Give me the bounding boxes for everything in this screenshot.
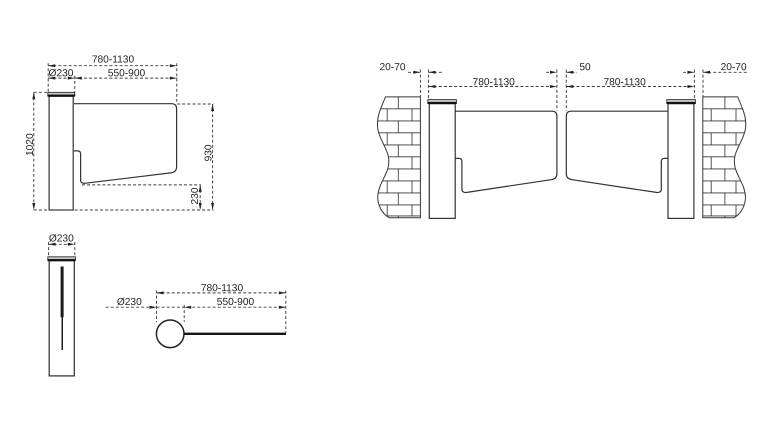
svg-text:550-900: 550-900 — [217, 297, 255, 308]
svg-text:Ø230: Ø230 — [49, 233, 74, 244]
svg-text:780-1130: 780-1130 — [201, 283, 244, 294]
svg-text:Ø230: Ø230 — [117, 297, 142, 308]
svg-text:20-70: 20-70 — [721, 62, 747, 73]
svg-text:50: 50 — [579, 62, 591, 73]
svg-text:20-70: 20-70 — [379, 62, 405, 73]
svg-text:930: 930 — [204, 144, 215, 161]
svg-text:780-1130: 780-1130 — [473, 77, 516, 88]
svg-text:1020: 1020 — [25, 133, 36, 156]
svg-text:Ø230: Ø230 — [49, 68, 74, 79]
svg-text:550-900: 550-900 — [108, 68, 146, 79]
svg-text:230: 230 — [190, 187, 201, 204]
svg-text:780-1130: 780-1130 — [92, 54, 135, 65]
